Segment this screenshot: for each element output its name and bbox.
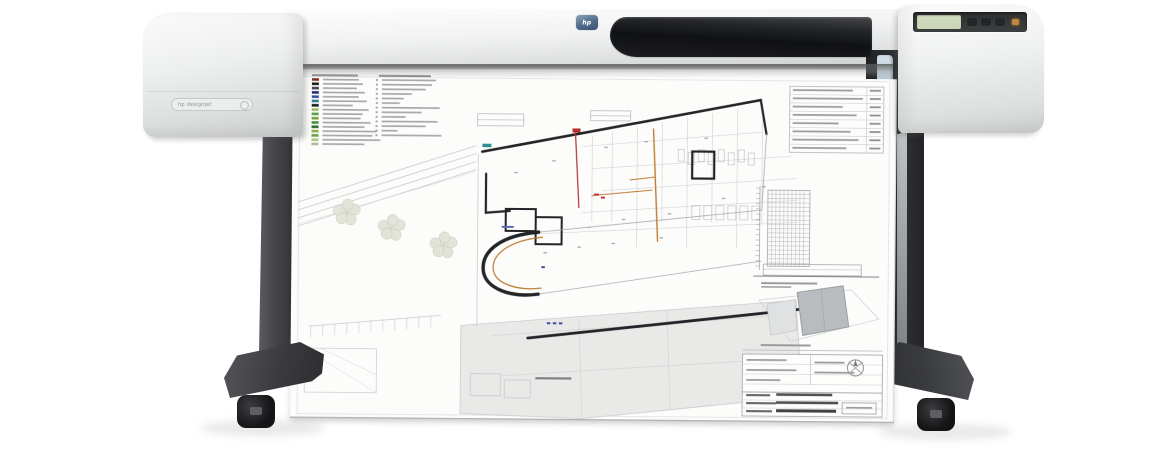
printer-right-end-cap [898, 5, 1044, 133]
panel-button-1 [967, 18, 977, 26]
power-led [1012, 19, 1019, 25]
model-badge: hp designjet [171, 98, 253, 111]
hp-logo-text: hp [583, 19, 592, 25]
control-panel [913, 12, 1027, 32]
panel-button-2 [981, 18, 991, 26]
caster-wheel-left [237, 395, 275, 428]
stand-right-rail [897, 130, 907, 352]
panel-button-3 [995, 18, 1005, 26]
paper-exit-slot-shadow [293, 64, 893, 78]
blueprint-drawing [290, 74, 897, 423]
hp-logo-badge: hp [576, 15, 598, 30]
smoked-window [610, 17, 872, 57]
printer-left-end-cap: hp designjet [143, 13, 303, 137]
caster-wheel-right [917, 398, 955, 431]
photo-canvas: hp hp designjet [0, 0, 1170, 450]
badge-round-button [240, 101, 249, 110]
model-label: hp designjet [178, 102, 212, 108]
lcd-display [917, 15, 961, 29]
printed-sheet [290, 74, 897, 423]
